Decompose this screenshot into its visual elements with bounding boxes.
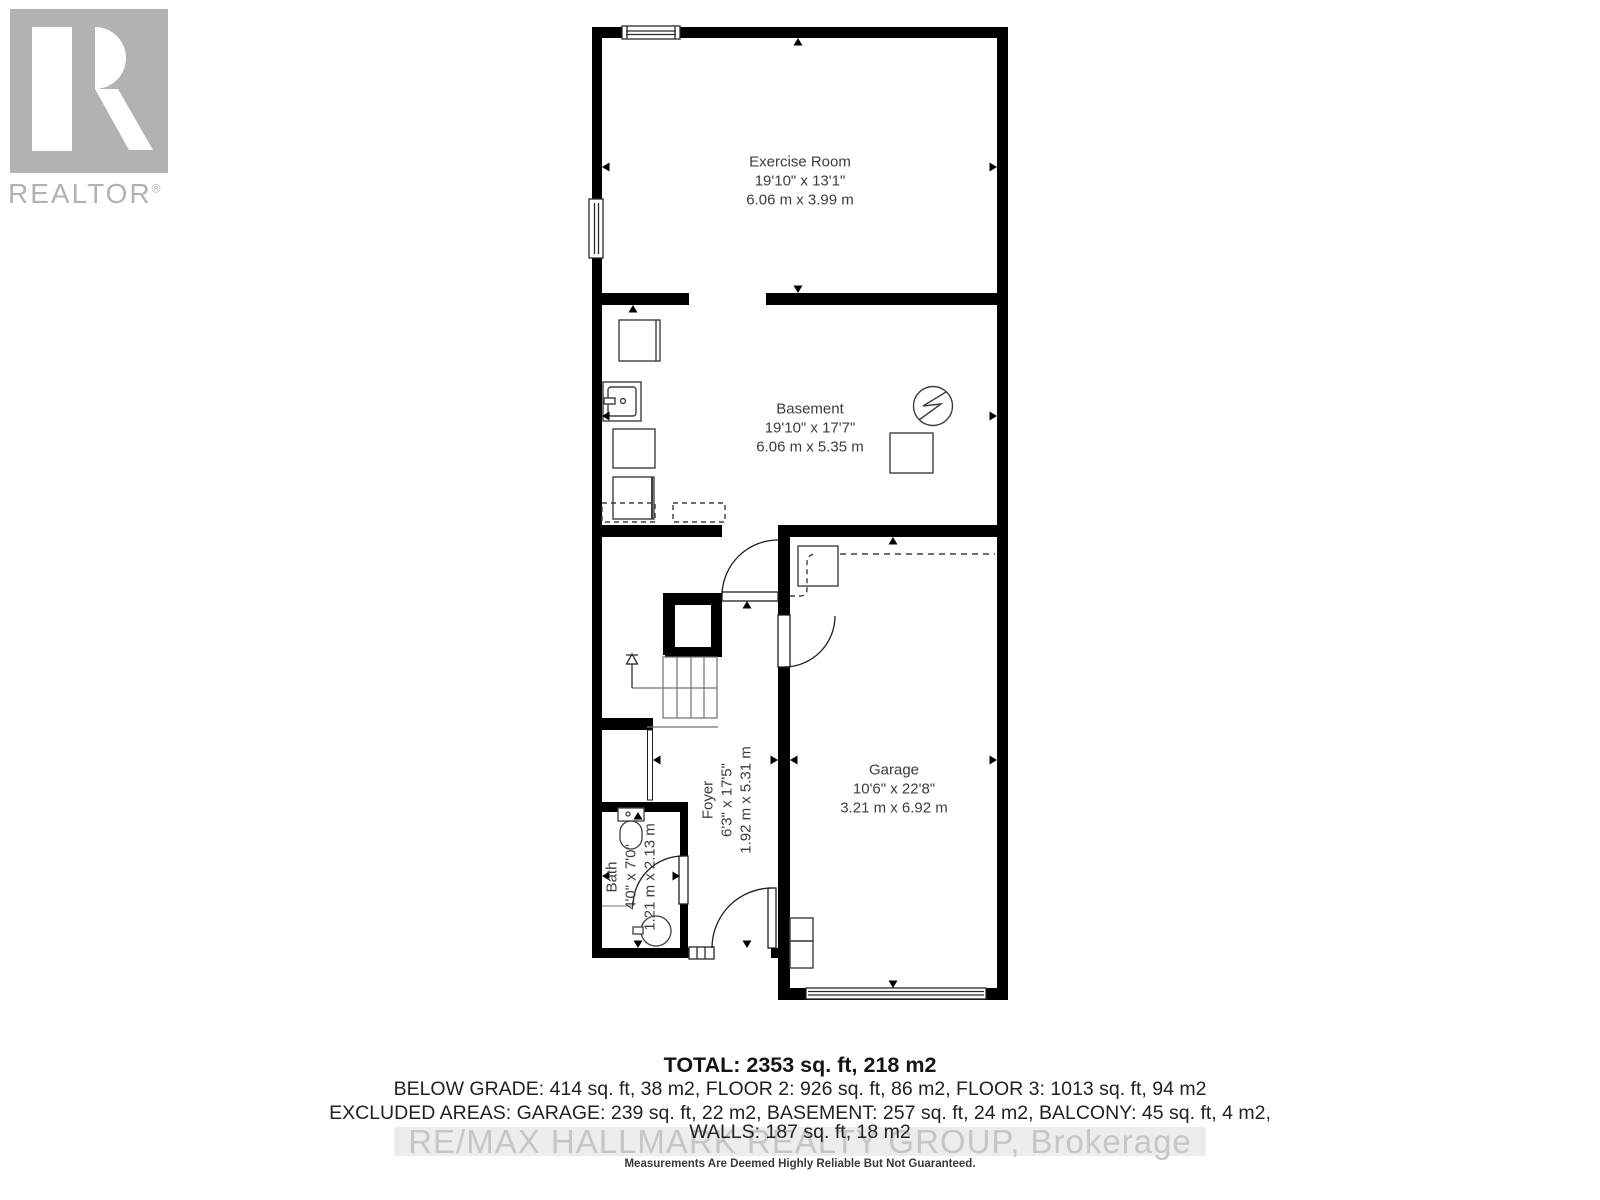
label-foyer: Foyer 6'3" x 17'5" 1.92 m x 5.31 m (699, 746, 756, 854)
electrical-panel-icon (914, 387, 953, 426)
appliance-icon (613, 429, 655, 519)
room-dims-imperial: 4'0" x 7'0" (622, 823, 641, 931)
realtor-logo (10, 9, 168, 178)
room-dims-metric: 1.92 m x 5.31 m (737, 746, 756, 854)
window-top-icon (622, 26, 680, 39)
room-dims-imperial: 6'3" x 17'5" (718, 746, 737, 854)
garage-entry-door-icon (778, 615, 835, 667)
garage-door-icon (806, 988, 986, 999)
garage-cabinet-icon (790, 918, 813, 968)
realtor-logo-icon (10, 9, 168, 173)
room-name: Basement (756, 400, 864, 419)
room-name: Foyer (699, 746, 718, 854)
room-dims-imperial: 19'10" x 17'7" (756, 419, 864, 438)
garage-track-elbow-dashed (790, 554, 816, 596)
hall-door-icon (648, 730, 653, 800)
garage-fixtures (790, 546, 995, 968)
walls-area-line: WALLS: 187 sq. ft, 18 m2 (0, 1121, 1600, 1144)
room-name: Garage (840, 761, 948, 780)
total-area-line: TOTAL: 2353 sq. ft, 218 m2 (0, 1053, 1600, 1078)
room-dims-imperial: 10'6" x 22'8" (840, 780, 948, 799)
label-exercise-room: Exercise Room 19'10" x 13'1" 6.06 m x 3.… (746, 153, 854, 210)
realtor-logo-text: REALTOR® (8, 178, 184, 210)
disclaimer-text: Measurements Are Deemed Highly Reliable … (0, 1158, 1600, 1170)
label-basement: Basement 19'10" x 17'7" 6.06 m x 5.35 m (756, 400, 864, 457)
room-dims-imperial: 19'10" x 13'1" (746, 172, 854, 191)
room-name: Bath (603, 823, 622, 931)
label-bath: Bath 4'0" x 7'0" 1.21 m x 2.13 m (603, 823, 660, 931)
basement-door-icon (722, 540, 778, 601)
sidelight-window-icon (689, 947, 714, 959)
utility-box-icon (890, 433, 933, 473)
room-dims-metric: 6.06 m x 5.35 m (756, 438, 864, 457)
window-left-icon (589, 199, 603, 258)
room-name: Exercise Room (746, 153, 854, 172)
garage-opener-icon (798, 546, 838, 586)
cabinet-icon (619, 320, 660, 361)
floorplan-page: REALTOR® (0, 0, 1600, 1200)
label-garage: Garage 10'6" x 22'8" 3.21 m x 6.92 m (840, 761, 948, 818)
front-door-icon (712, 888, 776, 948)
registered-mark: ® (152, 182, 161, 196)
stairs-up-arrow-icon (626, 654, 638, 688)
room-dims-metric: 3.21 m x 6.92 m (840, 799, 948, 818)
floor-areas-line: BELOW GRADE: 414 sq. ft, 38 m2, FLOOR 2:… (0, 1078, 1600, 1101)
room-dims-metric: 6.06 m x 3.99 m (746, 191, 854, 210)
stairs (626, 654, 718, 727)
room-dims-metric: 1.21 m x 2.13 m (641, 823, 660, 931)
